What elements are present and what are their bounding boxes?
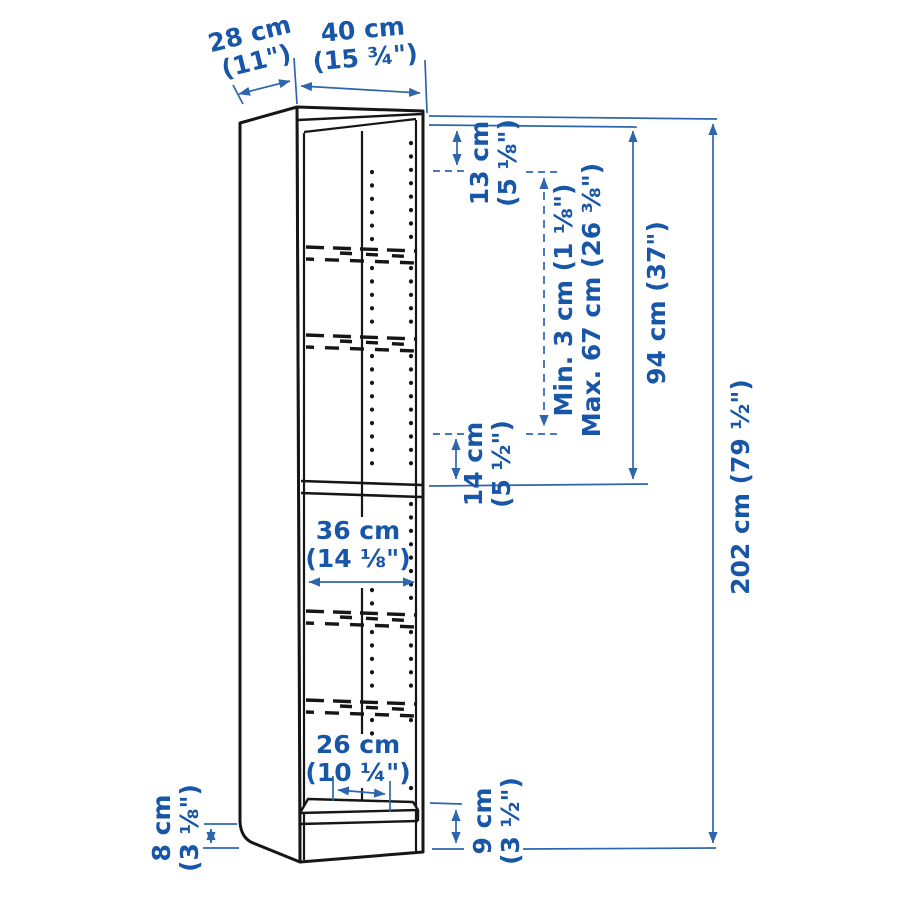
top-gap-label: 13 cm (5 ⅛") (466, 119, 522, 207)
middle-gap-label: 14 cm (5 ½") (460, 420, 516, 508)
shelf-range-label: Min. 3 cm (1 ⅛") Max. 67 cm (26 ⅜") (550, 163, 606, 437)
dim-tick (425, 60, 427, 113)
middle-gap-metric: 14 cm (460, 420, 488, 508)
ext-line-floor (523, 848, 716, 849)
interior-width-label: 36 cm (14 ⅛") (305, 517, 410, 573)
dim-width-arrow (301, 86, 420, 93)
shelf-range-min: Min. 3 cm (1 ⅛") (550, 163, 578, 437)
bottom-shelf-depth-metric: 26 cm (305, 731, 410, 759)
top-gap-imperial: (5 ⅛") (494, 119, 522, 207)
side-plinth-height-label: 8 cm (3 ⅛") (148, 784, 204, 872)
side-panel (240, 107, 300, 862)
shelf-range-max: Max. 67 cm (26 ⅜") (578, 163, 606, 437)
bottom-shelf-depth-label: 26 cm (10 ¼") (305, 731, 410, 787)
bookcase-dimension-diagram: 28 cm (11") 40 cm (15 ¾") 13 cm (5 ⅛") M… (0, 0, 900, 900)
bookcase-illustration (0, 0, 900, 900)
ext-line-top-upper (429, 125, 637, 127)
front-plinth-imperial: (3 ½") (497, 777, 525, 865)
bottom-shelf-depth-imperial: (10 ¼") (305, 759, 410, 787)
middle-gap-imperial: (5 ½") (488, 420, 516, 508)
upper-section-height-value: 94 cm (37") (643, 221, 671, 385)
total-height-label: 202 cm (79 ½") (727, 379, 755, 595)
dim-depth-arrow (239, 81, 290, 94)
upper-section-height-label: 94 cm (37") (643, 221, 671, 385)
side-plinth-metric: 8 cm (148, 784, 176, 872)
side-plinth-imperial: (3 ⅛") (176, 784, 204, 872)
interior-width-imperial: (14 ⅛") (305, 545, 410, 573)
width-label: 40 cm (15 ¾") (309, 12, 419, 77)
dim-tick (233, 85, 243, 104)
top-gap-metric: 13 cm (466, 119, 494, 207)
front-plinth-height-label: 9 cm (3 ½") (469, 777, 525, 865)
interior-width-metric: 36 cm (305, 517, 410, 545)
total-height-value: 202 cm (79 ½") (727, 379, 755, 595)
front-plinth-metric: 9 cm (469, 777, 497, 865)
dim-tick (430, 803, 462, 804)
